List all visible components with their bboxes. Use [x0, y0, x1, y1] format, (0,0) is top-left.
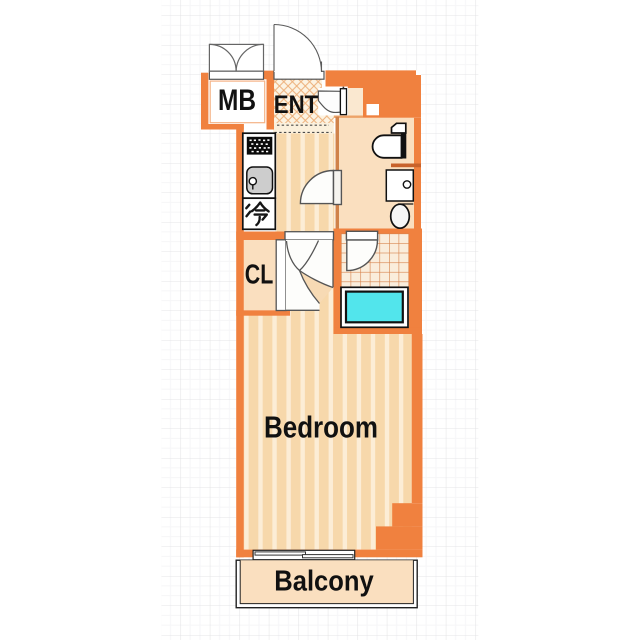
svg-text:ENT: ENT — [274, 91, 319, 119]
svg-text:Bedroom: Bedroom — [264, 410, 378, 445]
svg-text:CL: CL — [245, 259, 274, 290]
svg-text:MB: MB — [218, 84, 256, 117]
svg-text:Balcony: Balcony — [274, 566, 374, 598]
